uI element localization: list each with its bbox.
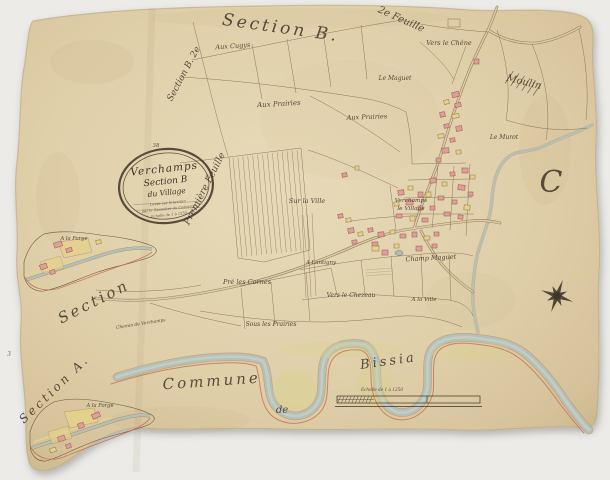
label-vers-le-chene: Vers le Chêne — [426, 39, 472, 47]
label-a-lantigny: A Lantigny — [305, 260, 337, 266]
label-le-murot: Le Murot — [489, 134, 519, 141]
label-sous-les-prairies: Sous les Prairies — [246, 321, 297, 328]
label-forge-bottom: A la Forge — [85, 403, 113, 409]
label-letter-c: C — [540, 165, 563, 200]
sheet-number: 38 — [153, 143, 160, 149]
scanned-cadastral-map-photo: Verchamps Section B du Village Levée sur… — [0, 0, 610, 480]
label-aux-prairies-east: Aux Prairies — [346, 112, 388, 121]
label-pre-les-cornes: Pré les Cornes — [222, 278, 272, 286]
scale-caption: Echelle de 1 à 1250 — [360, 387, 403, 392]
label-le-maguet: Le Maguet — [378, 75, 412, 82]
label-forge-top: A la Forge — [59, 236, 87, 242]
label-sur-la-ville: Sur la Ville — [289, 197, 326, 205]
label-vers-le-chezeau: Vers le Chezeau — [327, 292, 376, 299]
cadastral-map-svg: Verchamps Section B du Village Levée sur… — [0, 0, 610, 480]
label-village-sub: le Village — [397, 206, 425, 212]
village-pond — [395, 251, 403, 256]
label-numeral-3: 3 — [7, 351, 11, 358]
label-de: de — [276, 405, 288, 416]
label-village-name: Verchamps — [395, 198, 427, 204]
label-a-la-ville: A la Ville — [411, 297, 438, 303]
